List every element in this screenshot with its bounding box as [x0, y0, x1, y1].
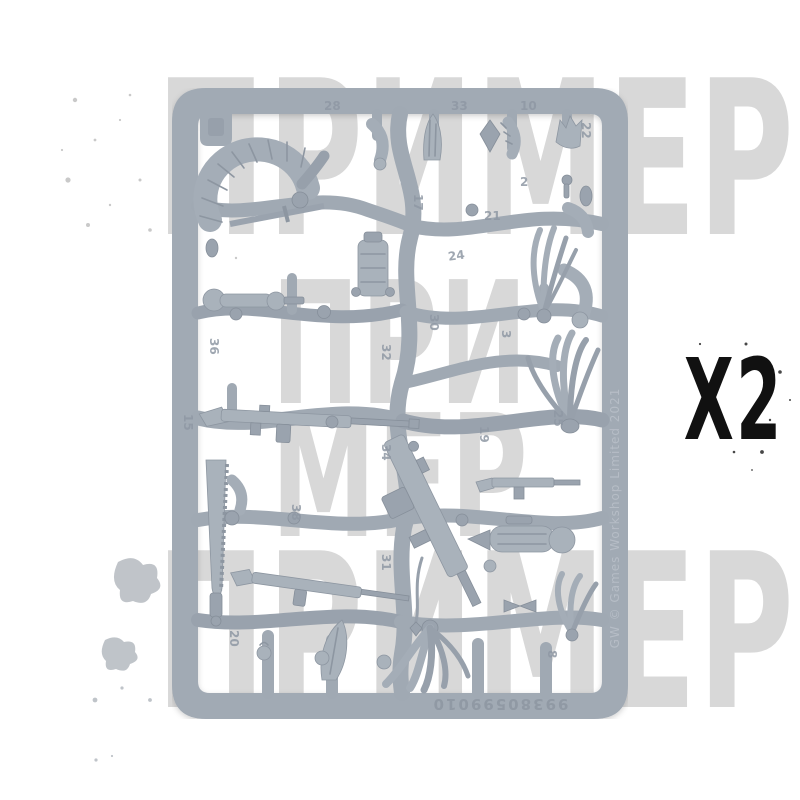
svg-text:15: 15 [181, 414, 195, 431]
svg-text:30: 30 [427, 314, 441, 331]
svg-text:32: 32 [379, 344, 393, 361]
svg-text:33: 33 [451, 99, 468, 113]
product-code-text: 99380599010 [432, 695, 569, 713]
sprue-runners [198, 114, 602, 693]
svg-text:3: 3 [499, 330, 513, 338]
svg-text:20: 20 [227, 630, 241, 647]
svg-text:17: 17 [411, 194, 425, 211]
svg-text:2: 2 [520, 175, 528, 189]
copyright-text: GW © Games Workshop Limited 2021 [608, 388, 622, 649]
svg-text:28: 28 [324, 99, 341, 113]
svg-text:24: 24 [447, 248, 465, 264]
svg-text:31: 31 [379, 554, 393, 571]
svg-text:8: 8 [545, 650, 559, 658]
quantity-label: X2 [684, 345, 774, 457]
sprue-photo: 28 33 10 22 17 21 24 32 30 3 34 19 25 31… [172, 88, 628, 719]
svg-text:34: 34 [379, 444, 393, 461]
svg-text:21: 21 [484, 209, 501, 223]
svg-text:22: 22 [579, 122, 593, 139]
product-photo: ПРИМЕР ПРИ МЕР ПРИМЕР [0, 0, 800, 800]
svg-text:10: 10 [520, 99, 537, 113]
svg-text:25: 25 [551, 410, 565, 427]
svg-text:38: 38 [289, 504, 303, 521]
svg-text:19: 19 [477, 426, 491, 443]
svg-text:36: 36 [207, 338, 221, 355]
